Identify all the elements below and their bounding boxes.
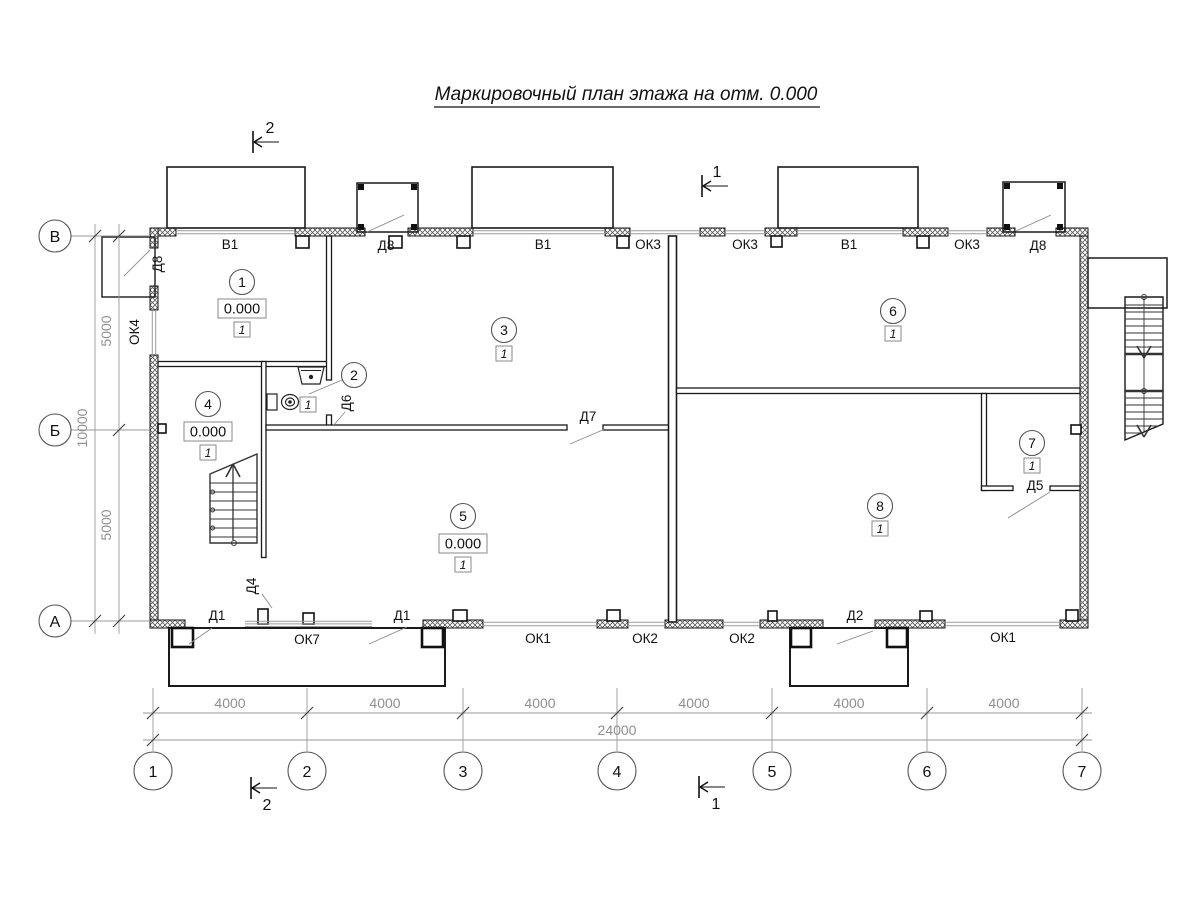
dim-ticks-left xyxy=(89,230,125,627)
room-finish: 1 xyxy=(305,398,312,412)
label-window-ok3-1: ОК3 xyxy=(635,237,661,252)
label-window-ok2-2: ОК2 xyxy=(729,631,755,646)
room-number: 3 xyxy=(500,322,508,338)
extension-lines xyxy=(153,688,1082,751)
room-finish: 1 xyxy=(460,558,467,572)
door-leaves xyxy=(124,215,1051,276)
axis-5: 5 xyxy=(768,764,777,781)
axis-a: А xyxy=(50,614,61,631)
toilet xyxy=(267,394,299,410)
plan-svg: Маркировочный план этажа на отм. 0.000 xyxy=(0,0,1200,900)
floor-plan-drawing: Маркировочный план этажа на отм. 0.000 xyxy=(0,0,1200,900)
section-label: 2 xyxy=(263,797,272,814)
dim-10000: 10000 xyxy=(74,408,90,447)
room-7-marker: 7 1 xyxy=(1020,431,1045,474)
room-finish: 1 xyxy=(1029,459,1036,473)
bottom-dimensions: 4000 4000 4000 4000 4000 4000 24000 xyxy=(143,688,1092,751)
room-finish: 1 xyxy=(877,522,884,536)
left-dimensions: 5000 5000 10000 xyxy=(74,224,125,634)
axis-v: В xyxy=(50,229,61,246)
axis-3: 3 xyxy=(459,764,468,781)
section-2-top: 2 xyxy=(253,120,279,153)
room-finish: 1 xyxy=(890,327,897,341)
room-number: 2 xyxy=(350,367,358,383)
room-number: 5 xyxy=(459,508,467,524)
section-label: 1 xyxy=(713,164,722,181)
room-finish: 1 xyxy=(205,446,212,460)
axis-letters: В Б А xyxy=(39,220,150,637)
label-window-ok1-1: ОК1 xyxy=(525,631,551,646)
dim-4000-2: 4000 xyxy=(369,695,400,711)
axis-2: 2 xyxy=(303,764,312,781)
label-window-v1-3: В1 xyxy=(841,237,858,252)
room-number: 8 xyxy=(876,498,884,514)
room-number: 6 xyxy=(889,303,897,319)
label-door-d6: Д6 xyxy=(339,395,354,412)
room-elevation: 0.000 xyxy=(224,302,260,318)
dim-5000-bottom: 5000 xyxy=(98,509,114,540)
label-window-ok4: ОК4 xyxy=(127,319,142,345)
axis-6: 6 xyxy=(923,764,932,781)
room-finish: 1 xyxy=(239,323,246,337)
room-number: 7 xyxy=(1028,435,1036,451)
label-door-d1-1: Д1 xyxy=(209,608,226,623)
dim-24000: 24000 xyxy=(598,722,637,738)
room-3-marker: 3 1 xyxy=(492,318,517,362)
dim-4000-6: 4000 xyxy=(988,695,1019,711)
room-6-marker: 6 1 xyxy=(881,299,906,342)
page-title: Маркировочный план этажа на отм. 0.000 xyxy=(435,84,818,105)
exterior-stair xyxy=(1088,258,1167,440)
axis-7: 7 xyxy=(1078,764,1087,781)
label-window-v1-1: В1 xyxy=(222,237,239,252)
label-door-d4: Д4 xyxy=(244,577,259,594)
room-number: 4 xyxy=(204,396,212,412)
axis-b: Б xyxy=(50,423,61,440)
label-window-v1-2: В1 xyxy=(535,237,552,252)
label-door-d2: Д2 xyxy=(847,608,864,623)
axis-numbers: 1 2 3 4 5 6 7 xyxy=(134,752,1101,790)
label-window-ok1-2: ОК1 xyxy=(990,630,1016,645)
label-window-ok7: ОК7 xyxy=(294,632,320,647)
room-elevation: 0.000 xyxy=(445,537,481,553)
label-window-ok3-2: ОК3 xyxy=(732,237,758,252)
section-2-bottom: 2 xyxy=(251,777,277,814)
axis-4: 4 xyxy=(613,764,622,781)
label-door-d5: Д5 xyxy=(1027,478,1044,493)
axis-1: 1 xyxy=(149,764,158,781)
dim-4000-3: 4000 xyxy=(524,695,555,711)
interior-stair xyxy=(210,454,257,546)
dim-4000-5: 4000 xyxy=(833,695,864,711)
room-1-marker: 1 0.000 1 xyxy=(218,270,266,338)
room-number: 1 xyxy=(238,274,246,290)
room-2-marker: 2 1 xyxy=(300,363,367,413)
label-door-d7: Д7 xyxy=(580,409,597,424)
dim-5000-top: 5000 xyxy=(98,315,114,346)
label-window-ok2-1: ОК2 xyxy=(632,631,658,646)
section-label: 1 xyxy=(712,796,721,813)
washbasin xyxy=(298,367,324,384)
room-4-marker: 4 0.000 1 xyxy=(184,392,232,461)
label-door-d1-2: Д1 xyxy=(394,608,411,623)
interior-walls xyxy=(158,236,1080,622)
dim-4000-1: 4000 xyxy=(214,695,245,711)
label-door-d8-left: Д8 xyxy=(150,256,165,273)
dim-4000-4: 4000 xyxy=(678,695,709,711)
label-door-d8-2: Д8 xyxy=(1030,238,1047,253)
drawing-title: Маркировочный план этажа на отм. 0.000 xyxy=(434,84,820,107)
room-annotations: 1 0.000 1 2 1 3 1 4 0.000 1 xyxy=(184,270,1045,573)
room-elevation: 0.000 xyxy=(190,425,226,441)
room-5-marker: 5 0.000 1 xyxy=(439,504,487,573)
label-door-d8-1: Д8 xyxy=(378,238,395,253)
section-1-bottom: 1 xyxy=(699,776,725,813)
room-8-marker: 8 1 xyxy=(868,494,893,537)
room-finish: 1 xyxy=(501,347,508,361)
label-window-ok3-3: ОК3 xyxy=(954,237,980,252)
section-1-top: 1 xyxy=(702,164,728,197)
section-marks: 2 1 2 1 xyxy=(251,120,728,814)
section-label: 2 xyxy=(266,120,275,137)
